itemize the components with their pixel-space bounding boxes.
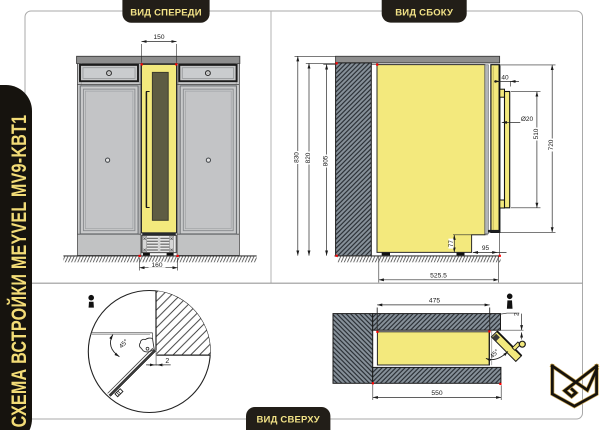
svg-text:820: 820 — [305, 152, 312, 163]
svg-text:95: 95 — [482, 245, 490, 252]
svg-text:525.5: 525.5 — [430, 272, 447, 279]
svg-text:805: 805 — [323, 155, 330, 166]
svg-text:150: 150 — [153, 34, 164, 41]
svg-text:ВИД СПЕРЕДИ: ВИД СПЕРЕДИ — [130, 8, 202, 19]
svg-text:ВИД СВЕРХУ: ВИД СВЕРХУ — [257, 415, 320, 426]
svg-text:2: 2 — [165, 358, 169, 365]
svg-text:40: 40 — [501, 74, 509, 81]
svg-text:510: 510 — [533, 128, 540, 139]
svg-text:160: 160 — [151, 262, 162, 269]
svg-text:ВИД СБОКУ: ВИД СБОКУ — [395, 8, 453, 19]
svg-text:475: 475 — [429, 298, 440, 305]
svg-text:СХЕМА ВСТРОЙКИ MEYVEL MV9-KBT1: СХЕМА ВСТРОЙКИ MEYVEL MV9-KBT1 — [7, 115, 32, 428]
svg-text:830: 830 — [294, 152, 301, 163]
svg-text:Ø20: Ø20 — [521, 116, 534, 123]
svg-text:720: 720 — [548, 139, 555, 150]
svg-text:2: 2 — [514, 312, 521, 316]
svg-text:550: 550 — [431, 390, 442, 397]
svg-text:77: 77 — [448, 240, 455, 248]
